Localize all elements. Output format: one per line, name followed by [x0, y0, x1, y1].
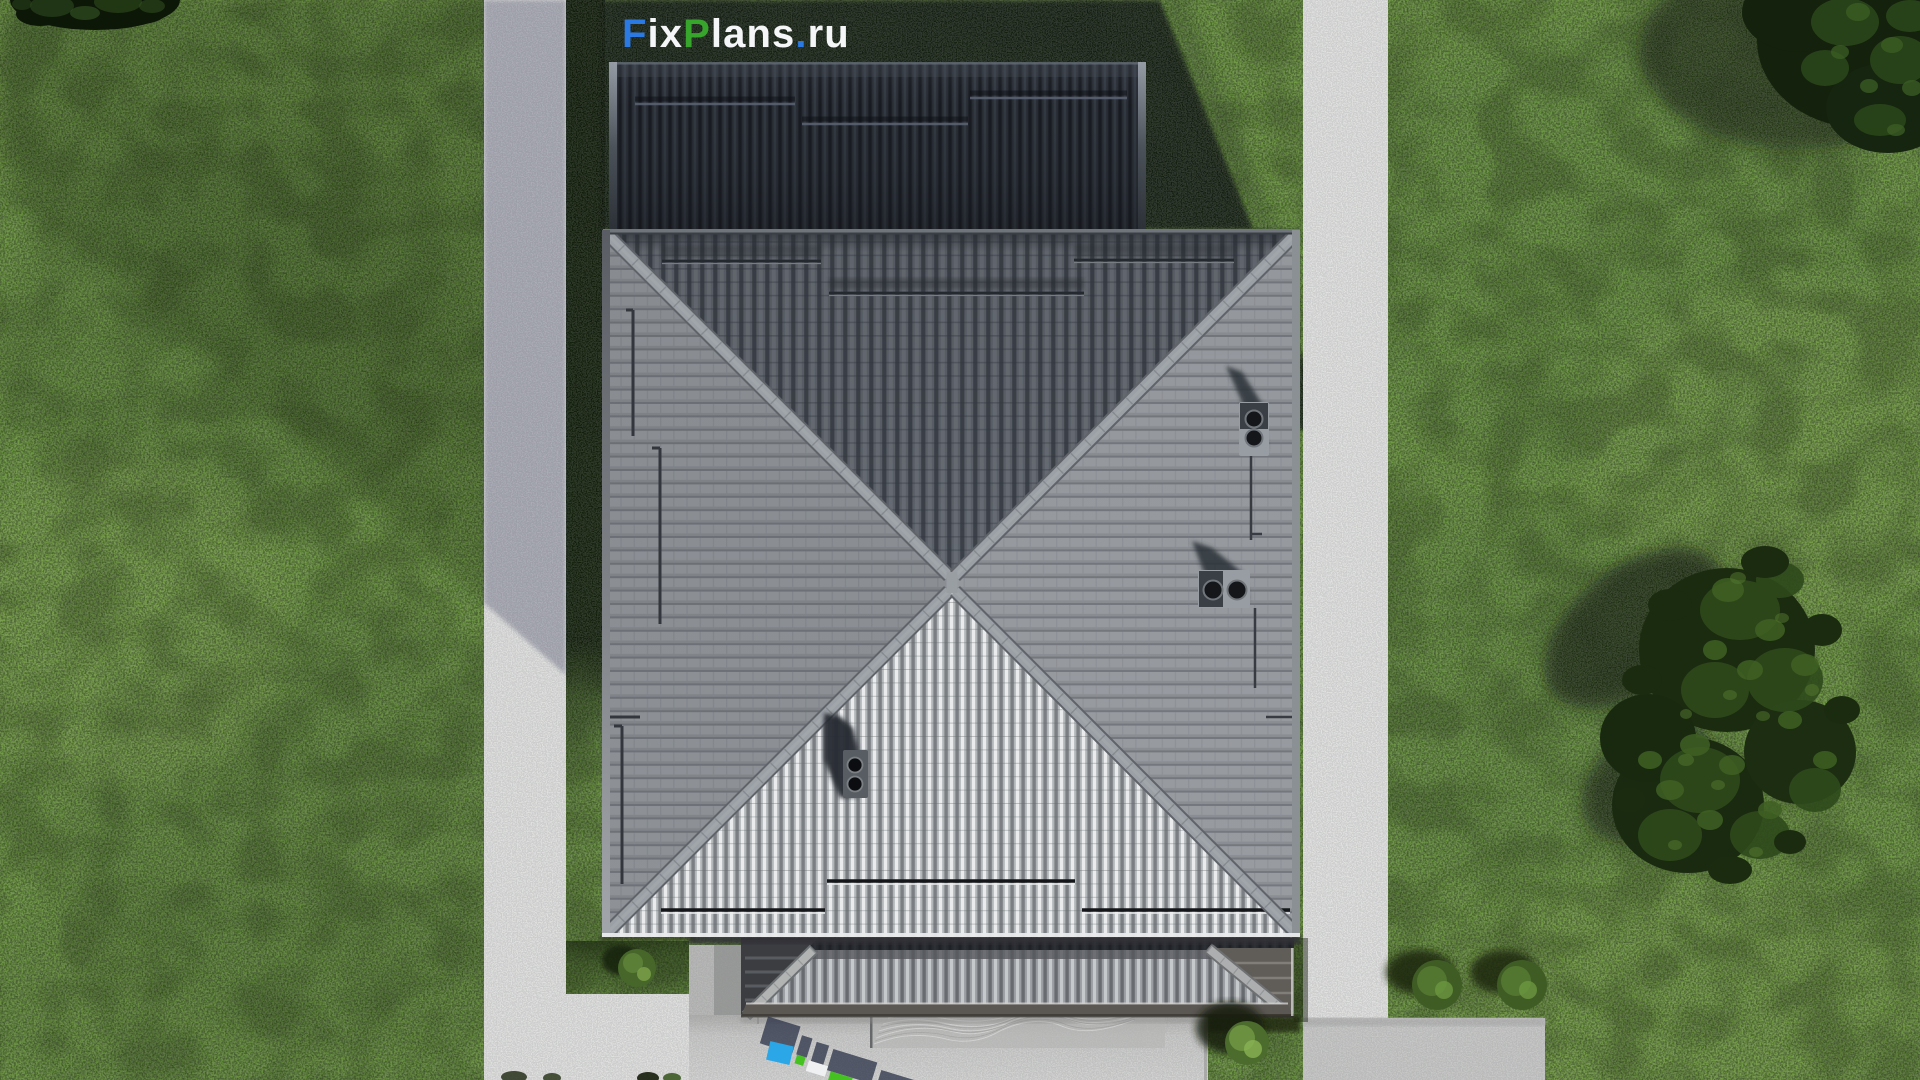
svg-text:FixPlans.ru: FixPlans.ru [622, 12, 850, 56]
